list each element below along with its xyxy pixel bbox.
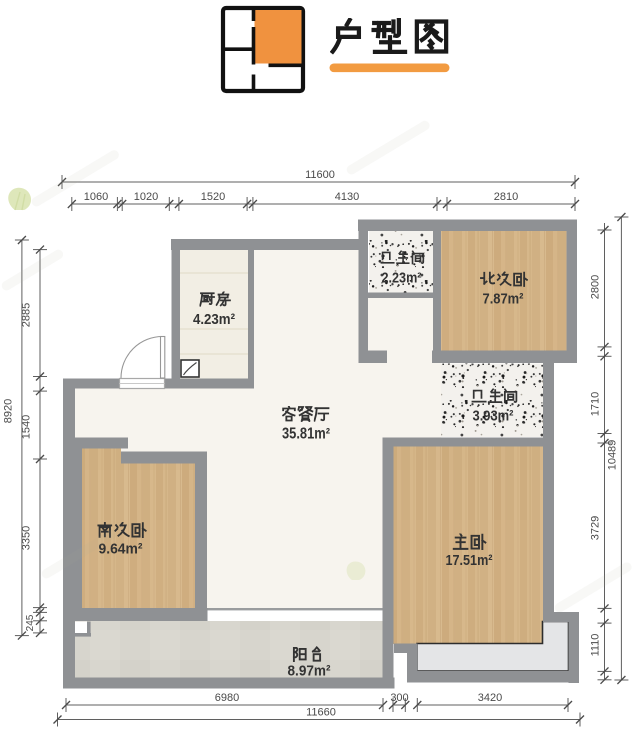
svg-text:10489: 10489 (607, 440, 619, 471)
svg-text:300: 300 (390, 692, 408, 704)
svg-text:4.23m²: 4.23m² (193, 311, 235, 328)
svg-text:35.81m²: 35.81m² (282, 426, 330, 443)
svg-text:2810: 2810 (494, 191, 518, 203)
svg-text:2800: 2800 (590, 275, 602, 299)
svg-text:3420: 3420 (478, 692, 502, 704)
svg-text:1110: 1110 (590, 634, 602, 657)
svg-text:2.23m²: 2.23m² (382, 271, 422, 287)
svg-text:1710: 1710 (590, 392, 602, 416)
svg-text:3.93m²: 3.93m² (473, 408, 514, 425)
svg-text:11600: 11600 (305, 169, 335, 181)
svg-text:245: 245 (25, 614, 36, 631)
svg-text:6980: 6980 (215, 692, 239, 704)
svg-text:8.97m²: 8.97m² (288, 663, 331, 680)
svg-text:4130: 4130 (335, 191, 359, 203)
svg-text:17.51m²: 17.51m² (446, 552, 493, 569)
svg-text:8920: 8920 (3, 399, 15, 423)
svg-text:11660: 11660 (306, 707, 336, 719)
svg-text:1060: 1060 (84, 191, 108, 203)
svg-text:1020: 1020 (134, 191, 158, 203)
svg-text:3729: 3729 (590, 516, 602, 540)
svg-text:1520: 1520 (201, 191, 225, 203)
svg-text:7.87m²: 7.87m² (483, 291, 524, 308)
